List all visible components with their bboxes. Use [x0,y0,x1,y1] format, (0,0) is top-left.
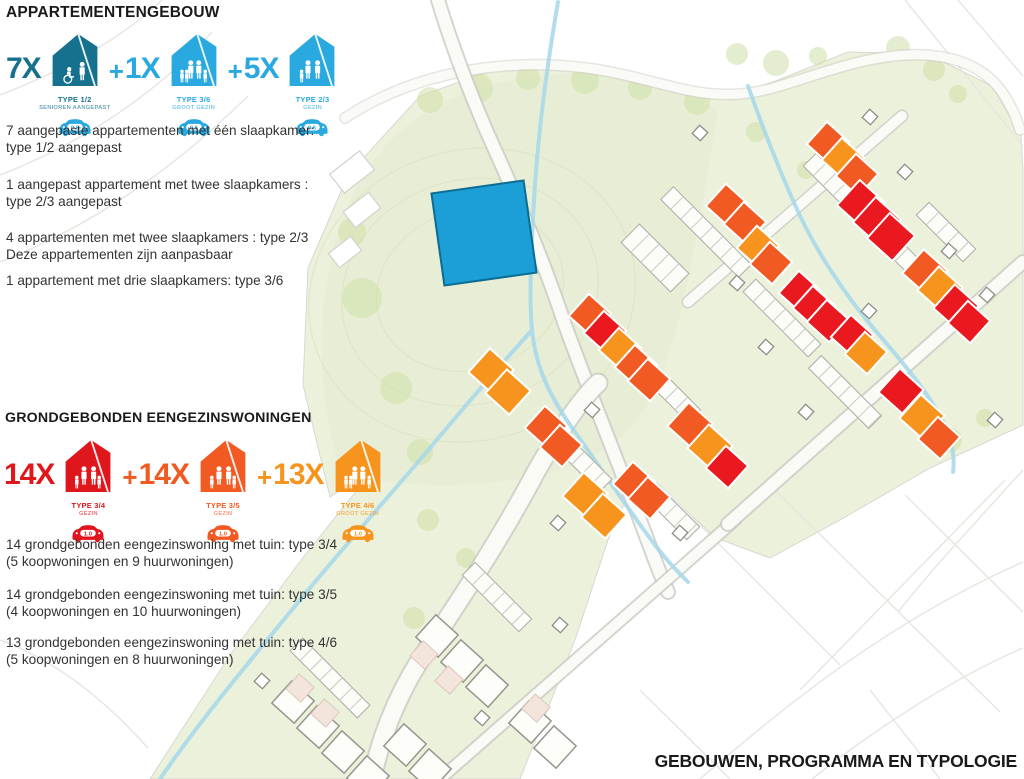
legend-item-type-1-2: 7X TYPE 1/2 SENIOREN AANGEPAST 0.6 [6,30,108,138]
house-icon [165,30,223,94]
apartment-building-blue [431,180,536,285]
legend-section-family-homes: GRONDGEBONDEN EENGEZINSWONINGEN [5,410,350,426]
plus-sign: + [257,464,272,490]
apartment-note-4: 1 appartement met drie slaapkamers: type… [6,273,346,290]
type-label: TYPE 3/4 [72,501,106,510]
tree [949,85,967,103]
subtype-label: GEZIN [214,511,233,517]
legend-item-type-2-3: 5X TYPE 2/3 GEZIN 0.6 [244,30,346,138]
apartment-note-2: 1 aangepast appartement met twee slaapka… [6,177,346,210]
subtype-label: GROOT GEZIN [172,105,215,111]
legend-item-type-4-6: 13X TYPE 4/6 GROOT GEZIN 1.0 [273,436,390,544]
unit-count: 14X [4,460,54,490]
tree [342,278,382,318]
tree [417,87,443,113]
tree [403,607,425,629]
tree [417,509,439,531]
house-icon [329,436,387,500]
subtype-label: GEZIN [303,105,322,111]
house-icon [46,30,104,94]
subtype-label: GEZIN [79,511,98,517]
family-home-icon-row: 14X TYPE 3/4 GEZIN 1.0 + [4,436,391,544]
unit-count: 5X [244,54,279,84]
apartment-note-3: 4 appartementen met twee slaapkamers : t… [6,230,346,263]
section-title: APPARTEMENTENGEBOUW [6,4,351,22]
unit-count: 13X [273,460,323,490]
apartment-icon-row: 7X TYPE 1/2 SENIOREN AANGEPAST 0.6 [6,30,345,138]
section-title: GRONDGEBONDEN EENGEZINSWONINGEN [5,410,350,426]
plus-sign: + [109,58,124,84]
type-label: TYPE 4/6 [341,501,375,510]
type-label: TYPE 2/3 [296,95,330,104]
tree [380,372,412,404]
unit-count: 14X [139,460,189,490]
house-icon [59,436,117,500]
tree [809,47,827,65]
subtype-label: SENIOREN AANGEPAST [39,105,110,111]
legend-item-type-3-6: 1X TYPE 3/6 GROOT GEZIN 0.6 [125,30,227,138]
unit-count: 7X [6,54,41,84]
tree [726,43,748,65]
legend-item-type-3-5: 14X TYPE 3/5 GEZIN 1.0 [139,436,256,544]
site-plan-page: APPARTEMENTENGEBOUW 7X TYPE 1/2 SENIOREN… [0,0,1024,779]
apartment-note-1: 7 aangepaste appartementen met één slaap… [6,123,346,156]
subtype-label: GROOT GEZIN [336,511,379,517]
unit-count: 1X [125,54,160,84]
apartment-building-layer [431,180,536,285]
house-icon [194,436,252,500]
legend-section-apartments: APPARTEMENTENGEBOUW [6,4,351,22]
type-label: TYPE 3/6 [177,95,211,104]
house-icon [283,30,341,94]
type-label: TYPE 1/2 [58,95,92,104]
family-note-3: 13 grondgebonden eengezinswoning met tui… [6,635,346,668]
family-note-2: 14 grondgebonden eengezinswoning met tui… [6,587,346,620]
svg-text:1.0: 1.0 [353,531,362,537]
legend-item-type-3-4: 14X TYPE 3/4 GEZIN 1.0 [4,436,121,544]
family-note-1: 14 grondgebonden eengezinswoning met tui… [6,537,346,570]
tree [763,50,789,76]
plus-sign: + [122,464,137,490]
page-title: GEBOUWEN, PROGRAMMA EN TYPOLOGIE [655,751,1017,772]
plus-sign: + [228,58,243,84]
type-label: TYPE 3/5 [206,501,240,510]
